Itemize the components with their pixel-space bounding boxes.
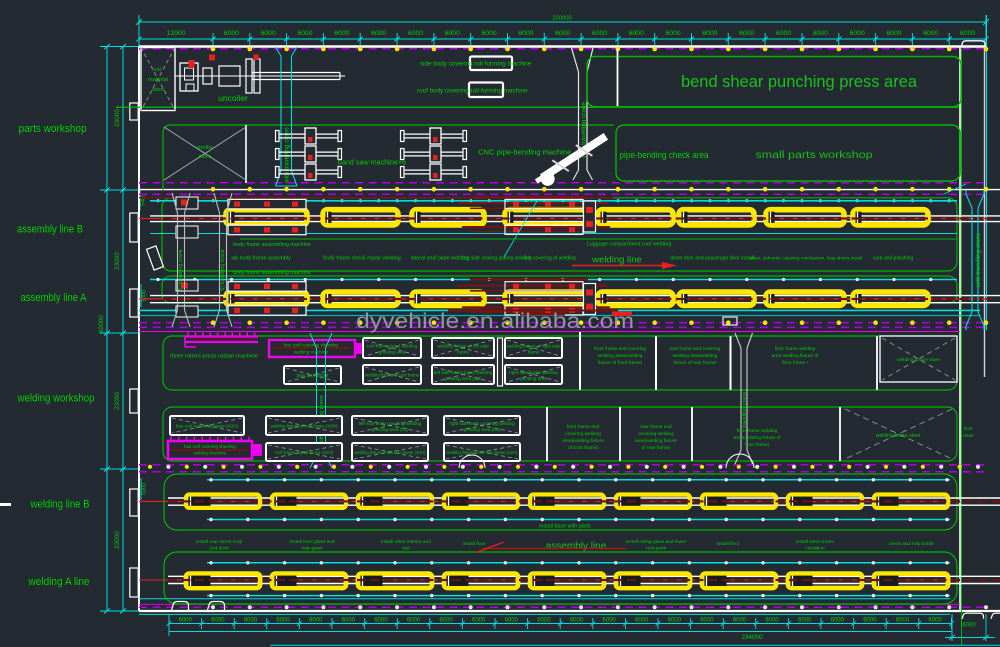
svg-text:6000: 6000 [408,30,423,37]
svg-text:6000: 6000 [445,30,460,37]
svg-text:lateral seal plate welding: lateral seal plate welding [410,256,469,262]
svg-text:grinding area (did): grinding area (did) [444,376,482,381]
svg-text:pipe-bending check area: pipe-bending check area [620,150,709,160]
svg-text:welding machine: welding machine [194,451,227,456]
svg-text:roof frame (rear) welding: roof frame (rear) welding [367,344,418,349]
svg-text:frame: frame [457,350,469,355]
svg-text:6000: 6000 [923,30,938,37]
svg-text:6000: 6000 [297,30,312,37]
svg-text:12000: 12000 [167,30,186,37]
svg-text:fixture of front frame!: fixture of front frame! [598,360,642,366]
svg-text:6000: 6000 [776,30,791,37]
svg-text:check and help bottle: check and help bottle [888,541,934,547]
svg-text:front frame and covering: front frame and covering [594,346,646,352]
svg-text:welding fixture of left side f: welding fixture of left side frame (X2H) [447,450,519,455]
svg-text:side covering of welding: side covering of welding [522,256,576,262]
svg-text:rear frame and covering: rear frame and covering [670,346,721,352]
svg-text:6000: 6000 [482,30,497,37]
svg-text:6000: 6000 [960,30,975,37]
svg-text:6000: 6000 [733,618,747,624]
svg-text:6000: 6000 [518,30,533,37]
svg-text:welding fixture of left side: welding fixture of left side [437,344,489,349]
svg-text:driver door and passenger door: driver door and passenger door install [670,256,754,262]
svg-text:6000: 6000 [309,618,323,624]
svg-text:crane: crane [963,433,975,438]
svg-text:6000: 6000 [702,30,717,37]
svg-text:profile: profile [197,145,213,151]
svg-text:roof body covering roll-formin: roof body covering roll-forming machine [417,88,528,95]
svg-text:area(welding fixture: area(welding fixture [562,438,604,444]
svg-text:welding fixture of right side: welding fixture of right side [506,344,561,349]
svg-text:right side frame welding: right side frame welding [509,370,558,375]
svg-text:6000: 6000 [850,30,865,37]
svg-text:grinding area: grinding area [520,376,547,381]
svg-text:6000: 6000 [537,618,551,624]
svg-text:assembly line A: assembly line A [21,292,88,304]
svg-text:welding area/welding: welding area/welding [673,353,718,359]
svg-text:sib body frame assembly: sib body frame assembly [231,256,291,262]
svg-text:store: store [199,154,212,160]
svg-text:6000: 6000 [592,30,607,37]
svg-text:grinding area: grinding area [379,350,406,355]
svg-text:right side body covering weldi: right side body covering welding [449,421,515,426]
svg-text:6000: 6000 [261,30,276,37]
svg-text:23000: 23000 [114,531,121,549]
svg-text:6000: 6000 [739,30,754,37]
svg-text:6000: 6000 [472,618,486,624]
svg-text:6000: 6000 [602,618,616,624]
svg-text:230000: 230000 [552,16,571,22]
svg-text:roof parts: roof parts [646,546,667,552]
svg-text:assembly line B: assembly line B [17,224,83,236]
svg-text:6000: 6000 [179,618,193,624]
svg-text:install front glass and: install front glass and [289,539,334,545]
svg-text:col.: col. [154,67,163,73]
svg-text:6000: 6000 [668,618,682,624]
svg-text:bend shear punching press area: bend shear punching press area [681,73,918,91]
svg-text:6000: 6000 [276,618,290,624]
svg-text:6000: 6000 [635,618,649,624]
svg-text:6000: 6000 [813,30,828,37]
svg-text:Luggage compartment roof weldi: Luggage compartment roof welding [587,242,672,248]
svg-text:install other interior and: install other interior and [381,539,431,545]
svg-text:5) travelling crane: 5) travelling crane [178,249,184,290]
svg-text:install floor: install floor [463,541,486,547]
svg-text:6000: 6000 [831,618,845,624]
svg-text:body frame check repair weldin: body frame check repair welding [323,256,401,262]
svg-text:body frame assembling machine: body frame assembling machine [233,242,311,248]
svg-text:grinding area (Cb): grinding area (Cb) [371,427,408,432]
svg-text:5000: 5000 [142,483,148,495]
svg-text:covering welding: covering welding [565,431,601,437]
svg-text:install wires motor: install wires motor [796,539,835,545]
svg-text:travelling crane: travelling crane [742,392,748,429]
svg-text:grinding area (Da): grinding area (Da) [463,427,500,432]
svg-text:area(welding fixture: area(welding fixture [635,438,677,444]
svg-text:left side body covering/weldin: left side body covering/welding [359,421,422,426]
svg-text:band saw machine×6: band saw machine×6 [338,158,406,167]
svg-text:2nd deck: 2nd deck [209,546,229,552]
svg-text:fixture of rear frame!: fixture of rear frame! [673,360,716,366]
svg-text:covering welding: covering welding [638,431,674,437]
svg-text:6000: 6000 [798,618,812,624]
svg-text:front: front [964,426,974,431]
svg-text:23000: 23000 [114,392,121,410]
svg-text:store: store [152,87,164,93]
svg-text:23000: 23000 [114,109,121,127]
svg-text:welding fixture of roof frame: welding fixture of roof frame (X3H) [271,424,338,429]
svg-text:6000: 6000 [439,618,453,624]
svg-text:6000: 6000 [555,30,570,37]
svg-text:floor frame): floor frame) [745,442,770,448]
svg-text:floor frame welding: floor frame welding [737,428,778,434]
svg-text:bus roof store: bus roof store [297,373,329,379]
svg-text:5) travelling crane: 5) travelling crane [220,249,226,290]
svg-text:install wiring glass and lower: install wiring glass and lower [626,539,687,545]
svg-text:6000: 6000 [962,623,976,629]
svg-text:welding fixture store: welding fixture store [876,433,921,439]
svg-text:6000: 6000 [863,618,877,624]
svg-text:6000: 6000 [374,618,388,624]
svg-text:front frame and: front frame and [567,424,600,430]
svg-text:bus roof covering sheeting: bus roof covering sheeting [284,343,338,348]
svg-text:6000: 6000 [211,618,225,624]
svg-text:bus roof assembly store (X2H): bus roof assembly store (X2H) [176,424,239,429]
svg-text:with travelling crane: with travelling crane [284,127,291,184]
svg-text:welding fixture store: welding fixture store [897,357,940,363]
svg-text:6000: 6000 [886,30,901,37]
svg-text:frame: frame [528,350,540,355]
svg-text:uncoiler: uncoiler [218,93,248,103]
svg-text:with travelling crane: with travelling crane [975,232,982,288]
svg-text:6000: 6000 [570,618,584,624]
svg-text:6000: 6000 [666,30,681,37]
svg-text:three rollers press radian mac: three rollers press radian machine [170,354,258,360]
svg-text:test: test [402,546,410,552]
svg-text:floor frame welding: floor frame welding [775,346,816,352]
svg-text:welding workshop: welding workshop [17,393,95,405]
svg-text:welding line B: welding line B [30,499,90,511]
svg-text:23000: 23000 [114,252,121,270]
svg-text:area welding fixture of: area welding fixture of [772,353,820,359]
svg-text:of front frame): of front frame) [568,445,599,451]
svg-text:6000: 6000 [700,618,714,624]
svg-text:welding machine: welding machine [294,350,329,355]
svg-text:curb and polishing: curb and polishing [873,256,914,262]
svg-text:6000: 6000 [244,618,258,624]
svg-text:roof frame repair store (X2H): roof frame repair store (X2H) [275,450,334,455]
svg-text:material: material [148,77,168,83]
svg-text:side body covering roll-formin: side body covering roll-forming machine [420,61,532,68]
svg-text:234000: 234000 [741,634,763,641]
svg-text:small parts workshop: small parts workshop [756,149,873,161]
svg-text:wiper, defroster, steering mec: wiper, defroster, steering mechanism, lo… [750,256,863,261]
svg-text:welding fixture of roof frame: welding fixture of roof frame [365,373,420,378]
svg-text:assembly line: assembly line [546,541,607,552]
svg-text:parts workshop: parts workshop [19,123,87,135]
svg-text:6000: 6000 [224,30,239,37]
svg-text:6000: 6000 [629,30,644,37]
svg-text:6000: 6000 [371,30,386,37]
svg-text:condition: condition [805,546,825,552]
svg-text:area(welding fixture of: area(welding fixture of [733,435,781,441]
svg-text:6000: 6000 [342,618,356,624]
svg-text:6000: 6000 [765,618,779,624]
svg-text:bus roof covering sheeting: bus roof covering sheeting [184,444,236,449]
svg-text:6000: 6000 [505,618,519,624]
svg-text:6000: 6000 [928,618,942,624]
svg-text:5400: 5400 [141,194,147,206]
svg-text:6000: 6000 [407,618,421,624]
svg-text:rear frame and: rear frame and [640,424,672,430]
svg-text:install floor: install floor [717,541,740,547]
svg-text:rear glass: rear glass [301,546,323,552]
svg-text:floor frame !: floor frame ! [782,360,808,366]
svg-text:welding fixture of left side f: welding fixture of left side frame (X2H) [355,450,427,455]
svg-text:left side frame (rear) welding: left side frame (rear) welding [434,370,493,375]
svg-text:welding area/welding: welding area/welding [598,353,643,359]
svg-text:5000: 5000 [142,290,148,302]
svg-text:6000: 6000 [334,30,349,37]
svg-text:welding A line: welding A line [28,576,90,588]
svg-text:welding line: welding line [591,255,642,266]
svg-text:dyvehicle.en.alibaba.com: dyvehicle.en.alibaba.com [356,310,634,333]
svg-text:of rear frame): of rear frame) [641,445,670,451]
svg-text:body frame assembling machine: body frame assembling machine [233,270,311,276]
svg-text:install rear mirror loop: install rear mirror loop [196,539,243,545]
svg-text:install base with parts: install base with parts [539,524,591,530]
svg-text:6000: 6000 [896,618,910,624]
svg-text:92000: 92000 [98,315,105,333]
svg-text:CNC pipe-bending machine: CNC pipe-bending machine [478,148,571,157]
